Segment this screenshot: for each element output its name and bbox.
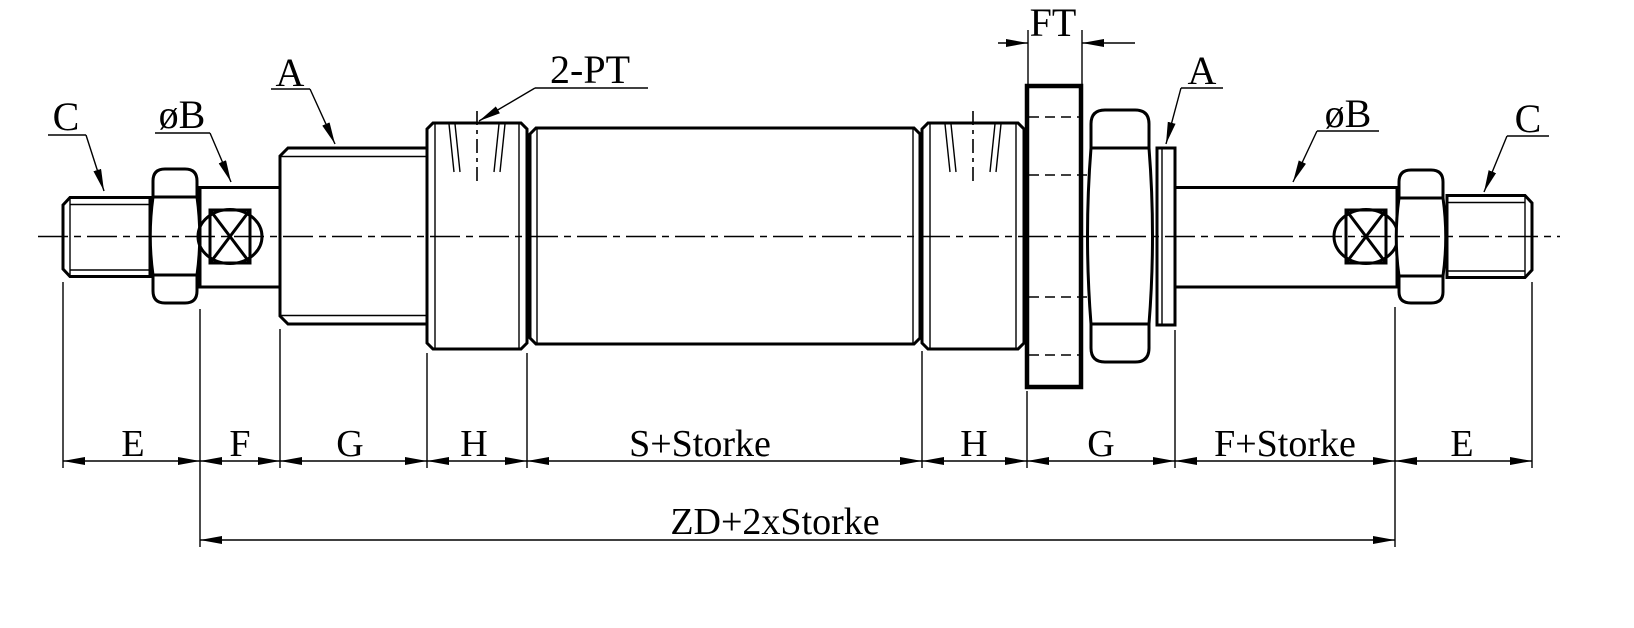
cylinder-dimension-drawing: E F G H S+Storke H G F+Storke E ZD+2xSto… (0, 0, 1634, 628)
callout-port: 2-PT (479, 47, 648, 121)
callout-ob-right: øB (1293, 91, 1379, 182)
callout-a-left-label: A (276, 50, 305, 95)
dim-f-stroke: F+Storke (1214, 423, 1356, 465)
callout-a-right-label: A (1188, 48, 1217, 93)
dim-e-right: E (1450, 423, 1473, 465)
callout-a-left: A (271, 50, 335, 144)
callout-c-right-label: C (1515, 96, 1542, 141)
dim-e-left: E (121, 423, 144, 465)
callout-ob-right-label: øB (1325, 91, 1372, 136)
callout-ft: FT (1030, 0, 1077, 45)
dim-overall: ZD+2xStorke (670, 501, 879, 543)
callout-c-left-label: C (53, 94, 80, 139)
left-head-cap (427, 111, 527, 349)
callout-c-left: C (48, 94, 104, 191)
drawing-sheet: E F G H S+Storke H G F+Storke E ZD+2xSto… (0, 0, 1634, 628)
ft-dimension: FT (998, 0, 1135, 84)
callout-c-right: C (1484, 96, 1549, 192)
dim-f-left: F (229, 423, 250, 465)
callout-a-right: A (1166, 48, 1223, 144)
dim-h-left: H (460, 423, 487, 465)
dimension-labels: E F G H S+Storke H G F+Storke E ZD+2xSto… (121, 423, 1473, 543)
right-head-cap (922, 111, 1024, 349)
dim-g-right: G (1087, 423, 1114, 465)
dim-h-right: H (960, 423, 987, 465)
dim-g-left: G (336, 423, 363, 465)
callout-port-label: 2-PT (550, 47, 630, 92)
dim-s-stroke: S+Storke (629, 423, 771, 465)
callout-ob-left-label: øB (159, 92, 206, 137)
